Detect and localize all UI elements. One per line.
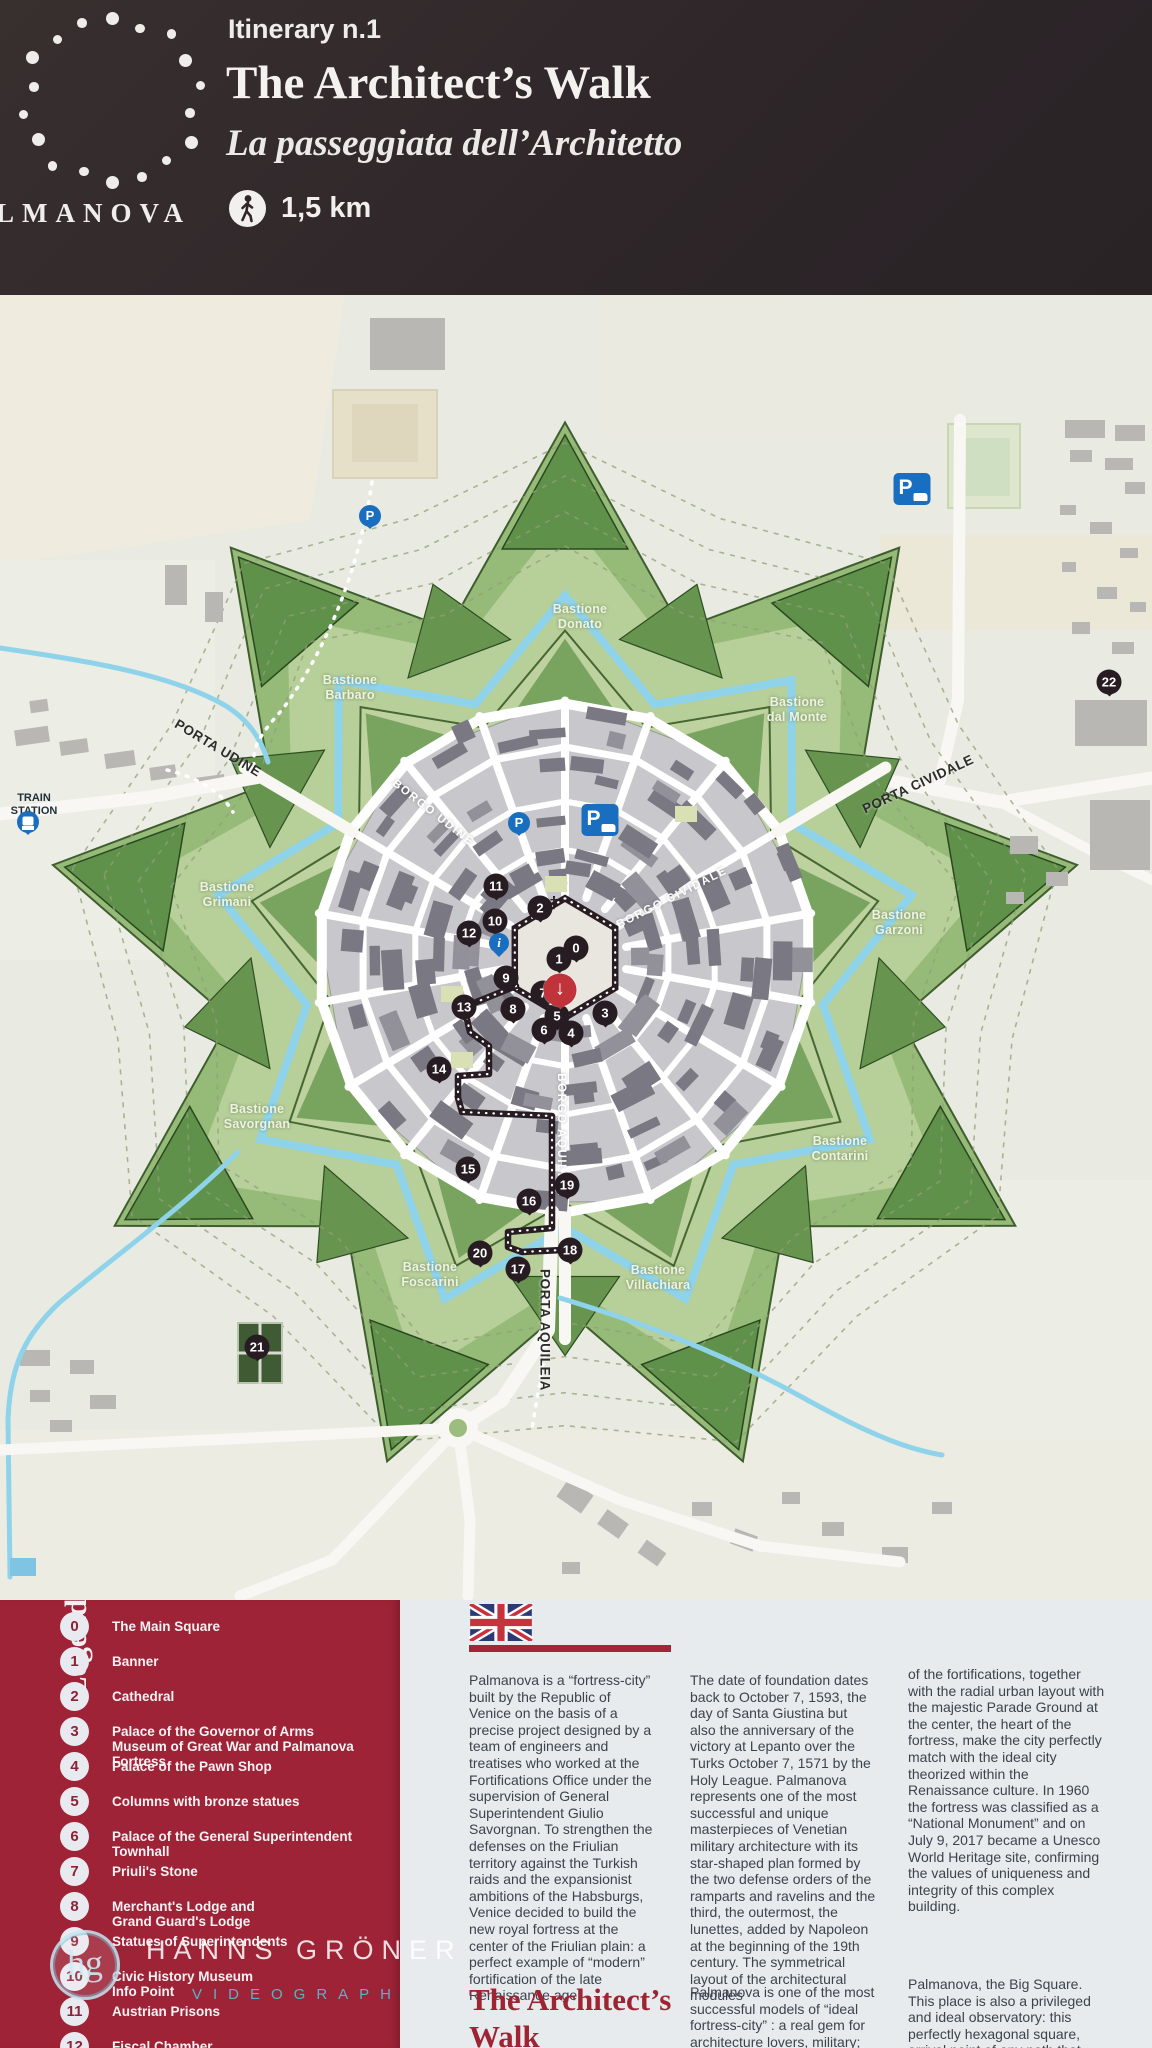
legend-number-badge: 3 bbox=[60, 1717, 89, 1746]
marker-label: 14 bbox=[432, 1062, 446, 1077]
legend-item-label: Civic History Museum Info Point bbox=[112, 1962, 397, 1999]
logo-dot bbox=[167, 29, 177, 39]
train-station-pin-icon bbox=[17, 811, 39, 833]
page-title: The Architect’s Walk bbox=[226, 56, 651, 110]
legend-number-badge: 9 bbox=[60, 1927, 89, 1956]
legend-number-badge: 4 bbox=[60, 1752, 89, 1781]
bastion-label: Bastione Foscarini bbox=[401, 1260, 458, 1290]
logo-dot bbox=[196, 81, 206, 91]
logo-dot bbox=[135, 24, 145, 34]
marker-label: 9 bbox=[502, 971, 509, 986]
parking-icon: P bbox=[508, 812, 530, 834]
legend-item-list: 0The Main Square1Banner2Cathedral3Palace… bbox=[0, 1612, 400, 2048]
map-marker-13: 13 bbox=[452, 995, 477, 1020]
bastion-label: Bastione Donato bbox=[553, 602, 607, 632]
legend-item-label: Statues of Superintendents bbox=[112, 1927, 397, 1949]
marker-label: i bbox=[497, 935, 501, 950]
legend-item-10: 10Civic History Museum Info Point bbox=[0, 1962, 400, 1997]
logo-dot bbox=[77, 18, 87, 28]
gate-label: PORTA CIVIDALE bbox=[860, 752, 976, 817]
you-are-here-pin-icon: ↓ bbox=[544, 974, 577, 1007]
map-marker-21: 21 bbox=[245, 1335, 270, 1360]
legend-item-5: 5Columns with bronze statues bbox=[0, 1787, 400, 1822]
legend-item-4: 4Palace of the Pawn Shop bbox=[0, 1752, 400, 1787]
uk-flag-icon bbox=[469, 1604, 533, 1641]
legend-item-6: 6Palace of the General Superintendent To… bbox=[0, 1822, 400, 1857]
logo-dot bbox=[26, 51, 39, 64]
marker-label: 0 bbox=[572, 941, 579, 956]
legend-item-label: Palace of the General Superintendent Tow… bbox=[112, 1822, 397, 1859]
map-marker-18: 18 bbox=[558, 1238, 583, 1263]
legend-number-badge: 12 bbox=[60, 2032, 89, 2048]
map-marker-15: 15 bbox=[456, 1157, 481, 1182]
marker-label: 12 bbox=[462, 926, 476, 941]
logo-dot bbox=[185, 108, 195, 118]
big-square-paragraph: Palmanova, the Big Square. This place is… bbox=[908, 1976, 1108, 2048]
bastion-label: Bastione Contarini bbox=[812, 1134, 869, 1164]
logo-dot bbox=[79, 167, 89, 177]
marker-label: 13 bbox=[457, 1000, 471, 1015]
legend-item-0: 0The Main Square bbox=[0, 1612, 400, 1647]
marker-label: 10 bbox=[488, 914, 502, 929]
map-marker-3: 3 bbox=[593, 1001, 618, 1026]
marker-label: 11 bbox=[489, 879, 503, 894]
logo-dot bbox=[29, 82, 39, 92]
brand-wordmark: LMANOVA bbox=[0, 198, 191, 229]
map: Bastione DonatoBastione BarbaroBastione … bbox=[0, 295, 1152, 1600]
legend-number-badge: 0 bbox=[60, 1612, 89, 1641]
marker-label: ↓ bbox=[555, 978, 565, 1000]
marker-label: 8 bbox=[509, 1002, 516, 1017]
legend-number-badge: 1 bbox=[60, 1647, 89, 1676]
legend-item-label: The Main Square bbox=[112, 1612, 397, 1634]
legend-item-label: Fiscal Chamber bbox=[112, 2032, 397, 2048]
marker-label: 15 bbox=[461, 1162, 475, 1177]
logo-dot bbox=[137, 172, 147, 182]
logo-dot bbox=[106, 12, 119, 25]
map-marker-14: 14 bbox=[427, 1057, 452, 1082]
header-panel: Itinerary n.1 The Architect’s Walk La pa… bbox=[0, 0, 1152, 295]
logo-dot bbox=[179, 54, 192, 67]
legend-item-3: 3Palace of the Governor of Arms Museum o… bbox=[0, 1717, 400, 1752]
legend-item-label: Palace of the Pawn Shop bbox=[112, 1752, 397, 1774]
map-marker-11: 11 bbox=[484, 874, 509, 899]
legend-item-12: 12Fiscal Chamber bbox=[0, 2032, 400, 2048]
info-panel: Palmanova is a “fortress-city” built by … bbox=[400, 1600, 1152, 2048]
legend-item-label: Merchant's Lodge and Grand Guard's Lodge bbox=[112, 1892, 397, 1929]
walk-distance: 1,5 km bbox=[281, 192, 371, 225]
logo-dot bbox=[48, 161, 58, 171]
legend-item-2: 2Cathedral bbox=[0, 1682, 400, 1717]
info-point-pin-icon: i bbox=[489, 933, 509, 953]
foundation-paragraph: The date of foundation dates back to Oct… bbox=[690, 1672, 876, 2004]
legend-item-8: 8Merchant's Lodge and Grand Guard's Lodg… bbox=[0, 1892, 400, 1927]
bastion-label: Bastione dal Monte bbox=[767, 695, 827, 725]
unesco-paragraph: of the fortifications, together with the… bbox=[908, 1666, 1108, 1915]
marker-label: P bbox=[899, 476, 913, 499]
page-subtitle-italian: La passeggiata dell’Architetto bbox=[226, 122, 682, 165]
marker-label: 2 bbox=[536, 901, 543, 916]
walk-heading: The Architect’s Walk bbox=[469, 1981, 699, 2048]
gate-label: PORTA UDINE bbox=[172, 716, 264, 779]
train-glyph-icon bbox=[23, 816, 34, 825]
marker-label: P bbox=[587, 807, 601, 830]
parking-icon: P bbox=[582, 804, 619, 836]
marker-label: 16 bbox=[522, 1194, 536, 1209]
legend-number-badge: 6 bbox=[60, 1822, 89, 1851]
bastion-label: Bastione Garzoni bbox=[872, 908, 926, 938]
legend-item-label: Austrian Prisons bbox=[112, 1997, 397, 2019]
legend-item-7: 7Priuli's Stone bbox=[0, 1857, 400, 1892]
map-marker-10: 10 bbox=[483, 909, 508, 934]
bastion-label: Bastione Villachiara bbox=[626, 1263, 691, 1293]
camper-glyph-icon bbox=[914, 493, 928, 501]
gate-label: PORTA AQUILEIA bbox=[538, 1269, 553, 1391]
bastion-label: Bastione Savorgnan bbox=[224, 1102, 290, 1132]
map-marker-1: 1 bbox=[547, 947, 572, 972]
legend-item-label: Banner bbox=[112, 1647, 397, 1669]
map-marker-16: 16 bbox=[517, 1189, 542, 1214]
itinerary-number: Itinerary n.1 bbox=[228, 14, 381, 45]
red-rule bbox=[469, 1645, 671, 1652]
marker-label: 3 bbox=[601, 1006, 608, 1021]
marker-label: 17 bbox=[511, 1262, 525, 1277]
map-marker-19: 19 bbox=[555, 1173, 580, 1198]
legend-number-badge: 2 bbox=[60, 1682, 89, 1711]
map-marker-6: 6 bbox=[532, 1018, 557, 1043]
legend-item-label: Priuli's Stone bbox=[112, 1857, 397, 1879]
legend-item-label: Columns with bronze statues bbox=[112, 1787, 397, 1809]
map-marker-8: 8 bbox=[501, 997, 526, 1022]
logo-dot bbox=[19, 110, 29, 120]
legend-number-badge: 7 bbox=[60, 1857, 89, 1886]
legend-number-badge: 11 bbox=[60, 1997, 89, 2026]
marker-label: 19 bbox=[560, 1178, 574, 1193]
logo-dot bbox=[32, 133, 45, 146]
logo-dot bbox=[53, 35, 63, 45]
marker-label: P bbox=[366, 508, 375, 523]
legend-item-label: Cathedral bbox=[112, 1682, 397, 1704]
marker-label: 1 bbox=[555, 952, 562, 967]
legend-item-9: 9Statues of Superintendents bbox=[0, 1927, 400, 1962]
logo-dot bbox=[185, 136, 198, 149]
logo-dot bbox=[106, 176, 119, 189]
map-marker-22: 22 bbox=[1097, 670, 1122, 695]
legend-item-11: 11Austrian Prisons bbox=[0, 1997, 400, 2032]
map-marker-20: 20 bbox=[468, 1241, 493, 1266]
street-label: BORGO UDINE bbox=[390, 777, 476, 848]
bastion-label: Bastione Grimani bbox=[200, 880, 254, 910]
walking-person-icon bbox=[229, 190, 266, 227]
logo-dot bbox=[162, 156, 172, 166]
parking-icon: P bbox=[359, 505, 381, 527]
camper-glyph-icon bbox=[602, 824, 616, 832]
marker-label: 6 bbox=[540, 1023, 547, 1038]
map-marker-9: 9 bbox=[494, 966, 519, 991]
legend-number-badge: 10 bbox=[60, 1962, 89, 1991]
legend-number-badge: 5 bbox=[60, 1787, 89, 1816]
map-marker-17: 17 bbox=[506, 1257, 531, 1282]
legend-item-1: 1Banner bbox=[0, 1647, 400, 1682]
marker-label: 20 bbox=[473, 1246, 487, 1261]
marker-label: 4 bbox=[567, 1026, 574, 1041]
intro-paragraph-en: Palmanova is a “fortress-city” built by … bbox=[469, 1672, 655, 2004]
legend-number-badge: 8 bbox=[60, 1892, 89, 1921]
bastion-label: Bastione Barbaro bbox=[323, 673, 377, 703]
street-label: BORGO CIVIDALE bbox=[615, 865, 730, 931]
marker-label: 21 bbox=[250, 1340, 264, 1355]
map-marker-2: 2 bbox=[528, 896, 553, 921]
parking-icon: P bbox=[894, 473, 931, 505]
marker-label: P bbox=[515, 815, 524, 830]
map-marker-12: 12 bbox=[457, 921, 482, 946]
marker-label: 18 bbox=[563, 1243, 577, 1258]
marker-label: 22 bbox=[1102, 675, 1116, 690]
palmanova-itinerary-sign: Itinerary n.1 The Architect’s Walk La pa… bbox=[0, 0, 1152, 2048]
ideal-city-paragraph: Palmanova is one of the most successful … bbox=[690, 1984, 876, 2048]
